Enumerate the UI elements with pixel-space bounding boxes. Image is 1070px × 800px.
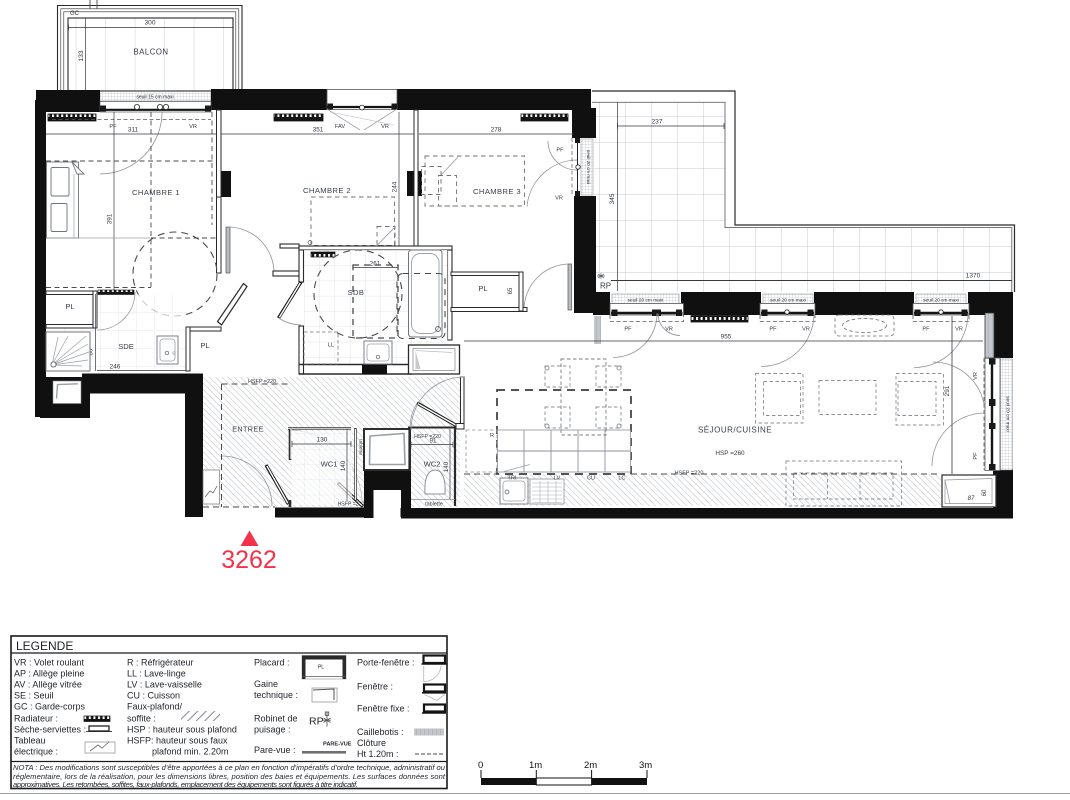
svg-text:PF: PF xyxy=(922,327,930,333)
svg-text:1m: 1m xyxy=(529,760,542,771)
svg-text:VR: VR xyxy=(802,327,810,333)
svg-text:LL: LL xyxy=(328,343,334,349)
svg-text:puisage :: puisage : xyxy=(254,725,291,735)
svg-text:Fenêtre :: Fenêtre : xyxy=(357,682,393,692)
svg-text:955: 955 xyxy=(721,334,732,341)
svg-text:VR: VR xyxy=(189,124,197,130)
svg-text:tablette: tablette xyxy=(425,502,443,508)
svg-text:SDE: SDE xyxy=(118,342,134,351)
svg-text:65: 65 xyxy=(508,287,514,294)
svg-text:140: 140 xyxy=(340,460,347,471)
svg-text:PL: PL xyxy=(478,284,487,293)
svg-text:PF: PF xyxy=(769,327,777,333)
svg-text:VR: VR xyxy=(955,327,963,333)
svg-text:PF: PF xyxy=(973,452,979,460)
svg-text:244: 244 xyxy=(392,181,399,192)
svg-text:87: 87 xyxy=(968,496,975,502)
svg-text:VR: VR xyxy=(665,327,673,333)
svg-text:HSP =260: HSP =260 xyxy=(715,450,745,457)
svg-text:LC: LC xyxy=(618,476,625,482)
svg-text:PL: PL xyxy=(200,341,209,350)
svg-text:HSFP =220: HSFP =220 xyxy=(675,471,704,477)
svg-text:Faux-plafond/: Faux-plafond/ xyxy=(127,702,183,712)
svg-text:3m: 3m xyxy=(639,760,652,771)
svg-text:AP : Allège pleine: AP : Allège pleine xyxy=(14,669,84,679)
svg-text:PARE-VUE: PARE-VUE xyxy=(323,742,352,748)
svg-text:1370: 1370 xyxy=(966,273,981,280)
svg-text:CU: CU xyxy=(587,476,595,482)
svg-text:133: 133 xyxy=(78,50,85,61)
svg-text:SE : Seuil: SE : Seuil xyxy=(14,691,54,701)
svg-text:RP: RP xyxy=(309,716,324,728)
svg-text:PF: PF xyxy=(556,148,564,154)
svg-text:Sèche-serviettes :: Sèche-serviettes : xyxy=(14,725,86,735)
svg-text:237: 237 xyxy=(651,119,662,126)
svg-text:0: 0 xyxy=(478,760,483,771)
svg-text:NOTA : Des modifications sont: NOTA : Des modifications sont susceptibl… xyxy=(13,763,446,772)
svg-text:FAV: FAV xyxy=(335,124,345,130)
svg-text:VR: VR xyxy=(381,124,389,130)
svg-text:VR : Volet roulant: VR : Volet roulant xyxy=(14,658,85,668)
svg-text:291: 291 xyxy=(944,385,951,396)
svg-text:PF: PF xyxy=(109,124,117,130)
svg-text:PL: PL xyxy=(318,665,324,671)
svg-text:278: 278 xyxy=(491,127,502,134)
svg-text:RP: RP xyxy=(600,282,611,291)
svg-text:HSP : hauteur sous plafond: HSP : hauteur sous plafond xyxy=(127,725,237,735)
svg-text:électrique :: électrique : xyxy=(14,747,58,757)
svg-text:PL: PL xyxy=(65,302,74,311)
svg-text:LL : Lave-linge: LL : Lave-linge xyxy=(127,669,186,679)
svg-text:seuil 20 cm maxi: seuil 20 cm maxi xyxy=(770,298,806,304)
svg-text:approximatives. Les retombées,: approximatives. Les retombées, soffites,… xyxy=(13,780,358,789)
svg-text:WC1: WC1 xyxy=(321,460,338,469)
svg-text:SDB: SDB xyxy=(348,288,365,297)
svg-text:311: 311 xyxy=(128,127,139,134)
svg-text:345: 345 xyxy=(609,193,616,204)
svg-text:plafond min. 2.20m: plafond min. 2.20m xyxy=(152,747,229,757)
svg-text:WC2: WC2 xyxy=(424,460,441,469)
svg-text:GC: GC xyxy=(70,11,80,17)
svg-text:BALCON: BALCON xyxy=(133,48,168,57)
svg-text:GC : Garde-corps: GC : Garde-corps xyxy=(14,702,86,712)
svg-text:60: 60 xyxy=(982,489,988,496)
svg-text:R : Réfrigérateur: R : Réfrigérateur xyxy=(127,658,194,668)
svg-text:246: 246 xyxy=(110,364,121,371)
svg-text:HSFP =220: HSFP =220 xyxy=(414,434,441,440)
svg-text:LV : Lave-vaisselle: LV : Lave-vaisselle xyxy=(127,680,202,690)
svg-text:CU : Cuisson: CU : Cuisson xyxy=(127,691,180,701)
svg-text:Pare-vue :: Pare-vue : xyxy=(254,745,296,755)
svg-text:300: 300 xyxy=(144,20,155,27)
svg-text:140: 140 xyxy=(443,461,450,472)
svg-text:seuil 20 cm maxi: seuil 20 cm maxi xyxy=(628,298,664,304)
svg-text:Robinet de: Robinet de xyxy=(254,714,298,724)
svg-text:HSFP: hauteur sous faux: HSFP: hauteur sous faux xyxy=(127,736,228,746)
svg-text:CHAMBRE 2: CHAMBRE 2 xyxy=(303,186,351,195)
svg-text:130: 130 xyxy=(317,437,328,444)
svg-text:391: 391 xyxy=(107,213,114,224)
svg-text:3262: 3262 xyxy=(221,546,277,574)
svg-text:LEGENDE: LEGENDE xyxy=(16,639,73,653)
svg-text:Ht 1.20m :: Ht 1.20m : xyxy=(357,749,399,759)
svg-text:91: 91 xyxy=(430,438,437,445)
svg-text:seuil 20 cm maxi: seuil 20 cm maxi xyxy=(923,298,959,304)
svg-text:R: R xyxy=(490,433,494,439)
svg-text:seuil 20 cm maxi: seuil 20 cm maxi xyxy=(1005,396,1011,432)
svg-text:LV: LV xyxy=(554,476,561,482)
svg-text:SÉJOUR/CUISINE: SÉJOUR/CUISINE xyxy=(698,426,772,435)
svg-text:AV : Allège vitrée: AV : Allège vitrée xyxy=(14,680,82,690)
svg-text:Placard :: Placard : xyxy=(254,658,290,668)
svg-text:tablette: tablette xyxy=(358,439,364,455)
svg-text:2m: 2m xyxy=(584,760,597,771)
svg-text:technique :: technique : xyxy=(254,690,298,700)
svg-text:Gaine: Gaine xyxy=(254,679,278,689)
svg-text:seuil 20 cm maxi: seuil 20 cm maxi xyxy=(586,150,591,184)
svg-text:Fenêtre fixe :: Fenêtre fixe : xyxy=(357,704,410,714)
svg-text:Caillebotis :: Caillebotis : xyxy=(357,727,404,737)
svg-text:Clôture: Clôture xyxy=(357,738,386,748)
svg-text:PF: PF xyxy=(624,327,632,333)
svg-text:HSFP =220: HSFP =220 xyxy=(338,502,365,508)
svg-text:Porte-fenêtre :: Porte-fenêtre : xyxy=(357,658,415,668)
svg-text:HSFP =220: HSFP =220 xyxy=(248,379,276,385)
svg-text:seuil 15 cm maxi: seuil 15 cm maxi xyxy=(136,95,173,101)
svg-text:351: 351 xyxy=(313,127,324,134)
svg-text:Tableau: Tableau xyxy=(14,736,46,746)
svg-text:261: 261 xyxy=(370,261,381,268)
svg-text:Radiateur :: Radiateur : xyxy=(14,714,58,724)
svg-text:CHAMBRE 1: CHAMBRE 1 xyxy=(132,188,180,197)
svg-text:soffite :: soffite : xyxy=(127,714,156,724)
svg-text:ENTREE: ENTREE xyxy=(232,425,264,434)
svg-text:VR: VR xyxy=(973,372,979,380)
svg-text:TRI: TRI xyxy=(507,476,516,482)
svg-text:CHAMBRE 3: CHAMBRE 3 xyxy=(473,187,521,196)
svg-text:VR: VR xyxy=(555,196,563,202)
